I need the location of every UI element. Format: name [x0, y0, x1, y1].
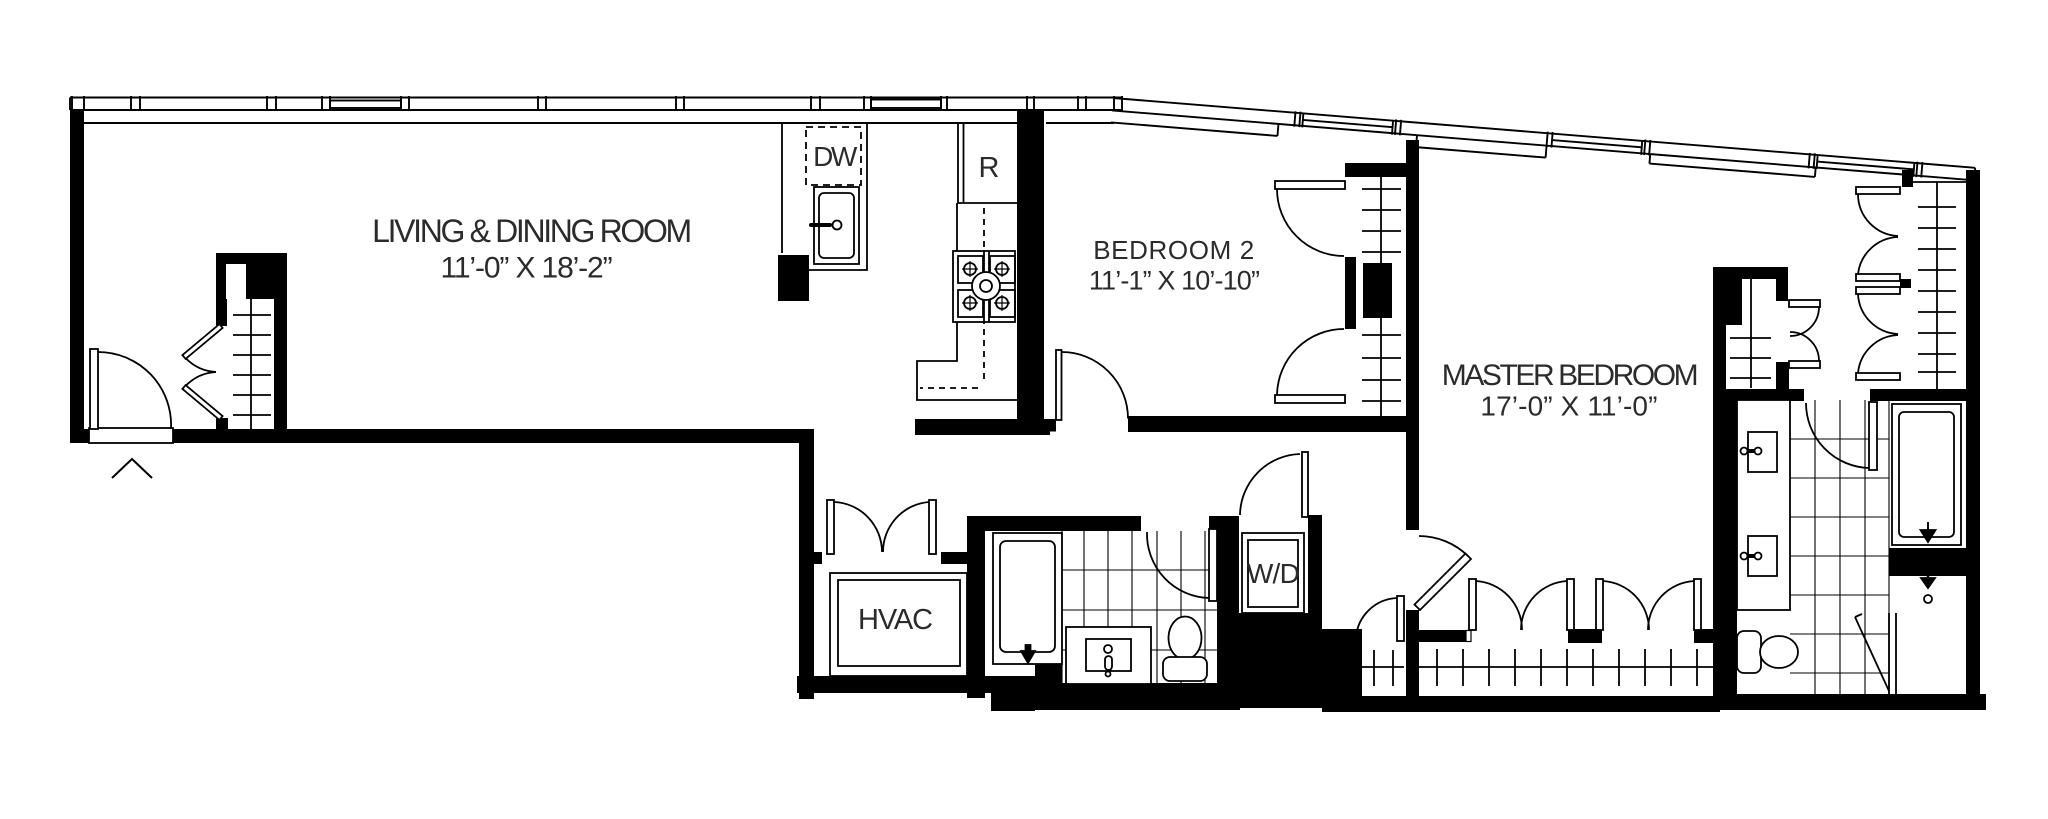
svg-text:17’-0” X 11’-0”: 17’-0” X 11’-0”	[1480, 391, 1657, 422]
svg-text:BEDROOM 2: BEDROOM 2	[1093, 235, 1255, 265]
svg-text:11’-1” X 10’-10”: 11’-1” X 10’-10”	[1089, 266, 1259, 296]
svg-text:DW: DW	[813, 141, 858, 172]
svg-text:LIVING & DINING ROOM: LIVING & DINING ROOM	[372, 213, 690, 249]
svg-text:HVAC: HVAC	[858, 604, 932, 636]
svg-text:MASTER BEDROOM: MASTER BEDROOM	[1442, 359, 1697, 392]
svg-text:W/D: W/D	[1247, 558, 1299, 589]
svg-text:11’-0” X 18’-2”: 11’-0” X 18’-2”	[441, 252, 612, 285]
svg-text:R: R	[979, 152, 1000, 184]
